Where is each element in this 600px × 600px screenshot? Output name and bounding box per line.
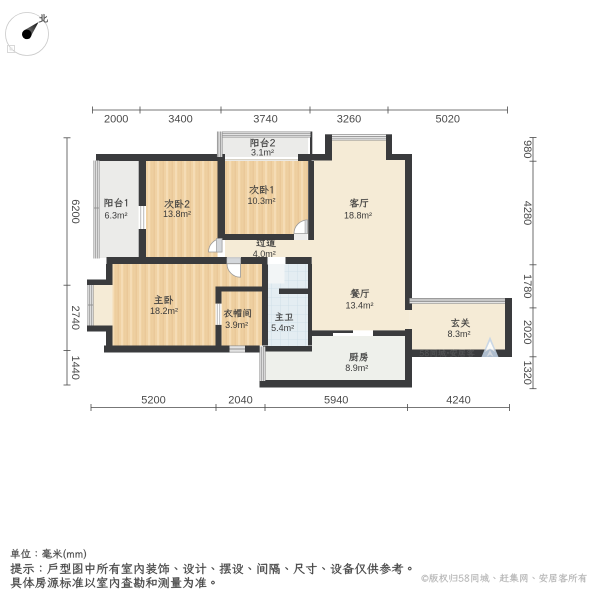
svg-text:18.2m²: 18.2m² [150, 306, 178, 316]
svg-text:3400: 3400 [168, 114, 192, 126]
svg-text:8.9m²: 8.9m² [345, 363, 368, 373]
svg-text:3260: 3260 [337, 114, 361, 126]
svg-text:2020: 2020 [521, 320, 533, 344]
svg-text:1320: 1320 [521, 360, 533, 384]
svg-text:2000: 2000 [104, 114, 128, 126]
svg-text:10.3m²: 10.3m² [247, 196, 275, 206]
svg-text:4240: 4240 [446, 395, 470, 407]
svg-text:980: 980 [521, 140, 533, 158]
svg-text:2740: 2740 [69, 306, 81, 330]
svg-text:4280: 4280 [521, 201, 533, 225]
svg-text:3.1m²: 3.1m² [251, 148, 274, 158]
svg-text:4.0m²: 4.0m² [253, 249, 276, 259]
svg-text:13.8m²: 13.8m² [163, 209, 191, 219]
svg-text:1440: 1440 [69, 355, 81, 379]
svg-text:6.3m²: 6.3m² [104, 211, 127, 221]
svg-text:3740: 3740 [253, 114, 277, 126]
svg-text:5020: 5020 [436, 114, 460, 126]
svg-text:5.4m²: 5.4m² [271, 323, 294, 333]
svg-text:5940: 5940 [324, 395, 348, 407]
svg-text:13.4m²: 13.4m² [345, 301, 373, 311]
svg-text:5200: 5200 [141, 395, 165, 407]
svg-text:18.8m²: 18.8m² [344, 210, 372, 220]
svg-text:6200: 6200 [69, 199, 81, 223]
svg-text:2040: 2040 [228, 395, 252, 407]
svg-text:3.9m²: 3.9m² [225, 320, 248, 330]
svg-text:1780: 1780 [521, 274, 533, 298]
svg-text:8.3m²: 8.3m² [447, 329, 470, 339]
